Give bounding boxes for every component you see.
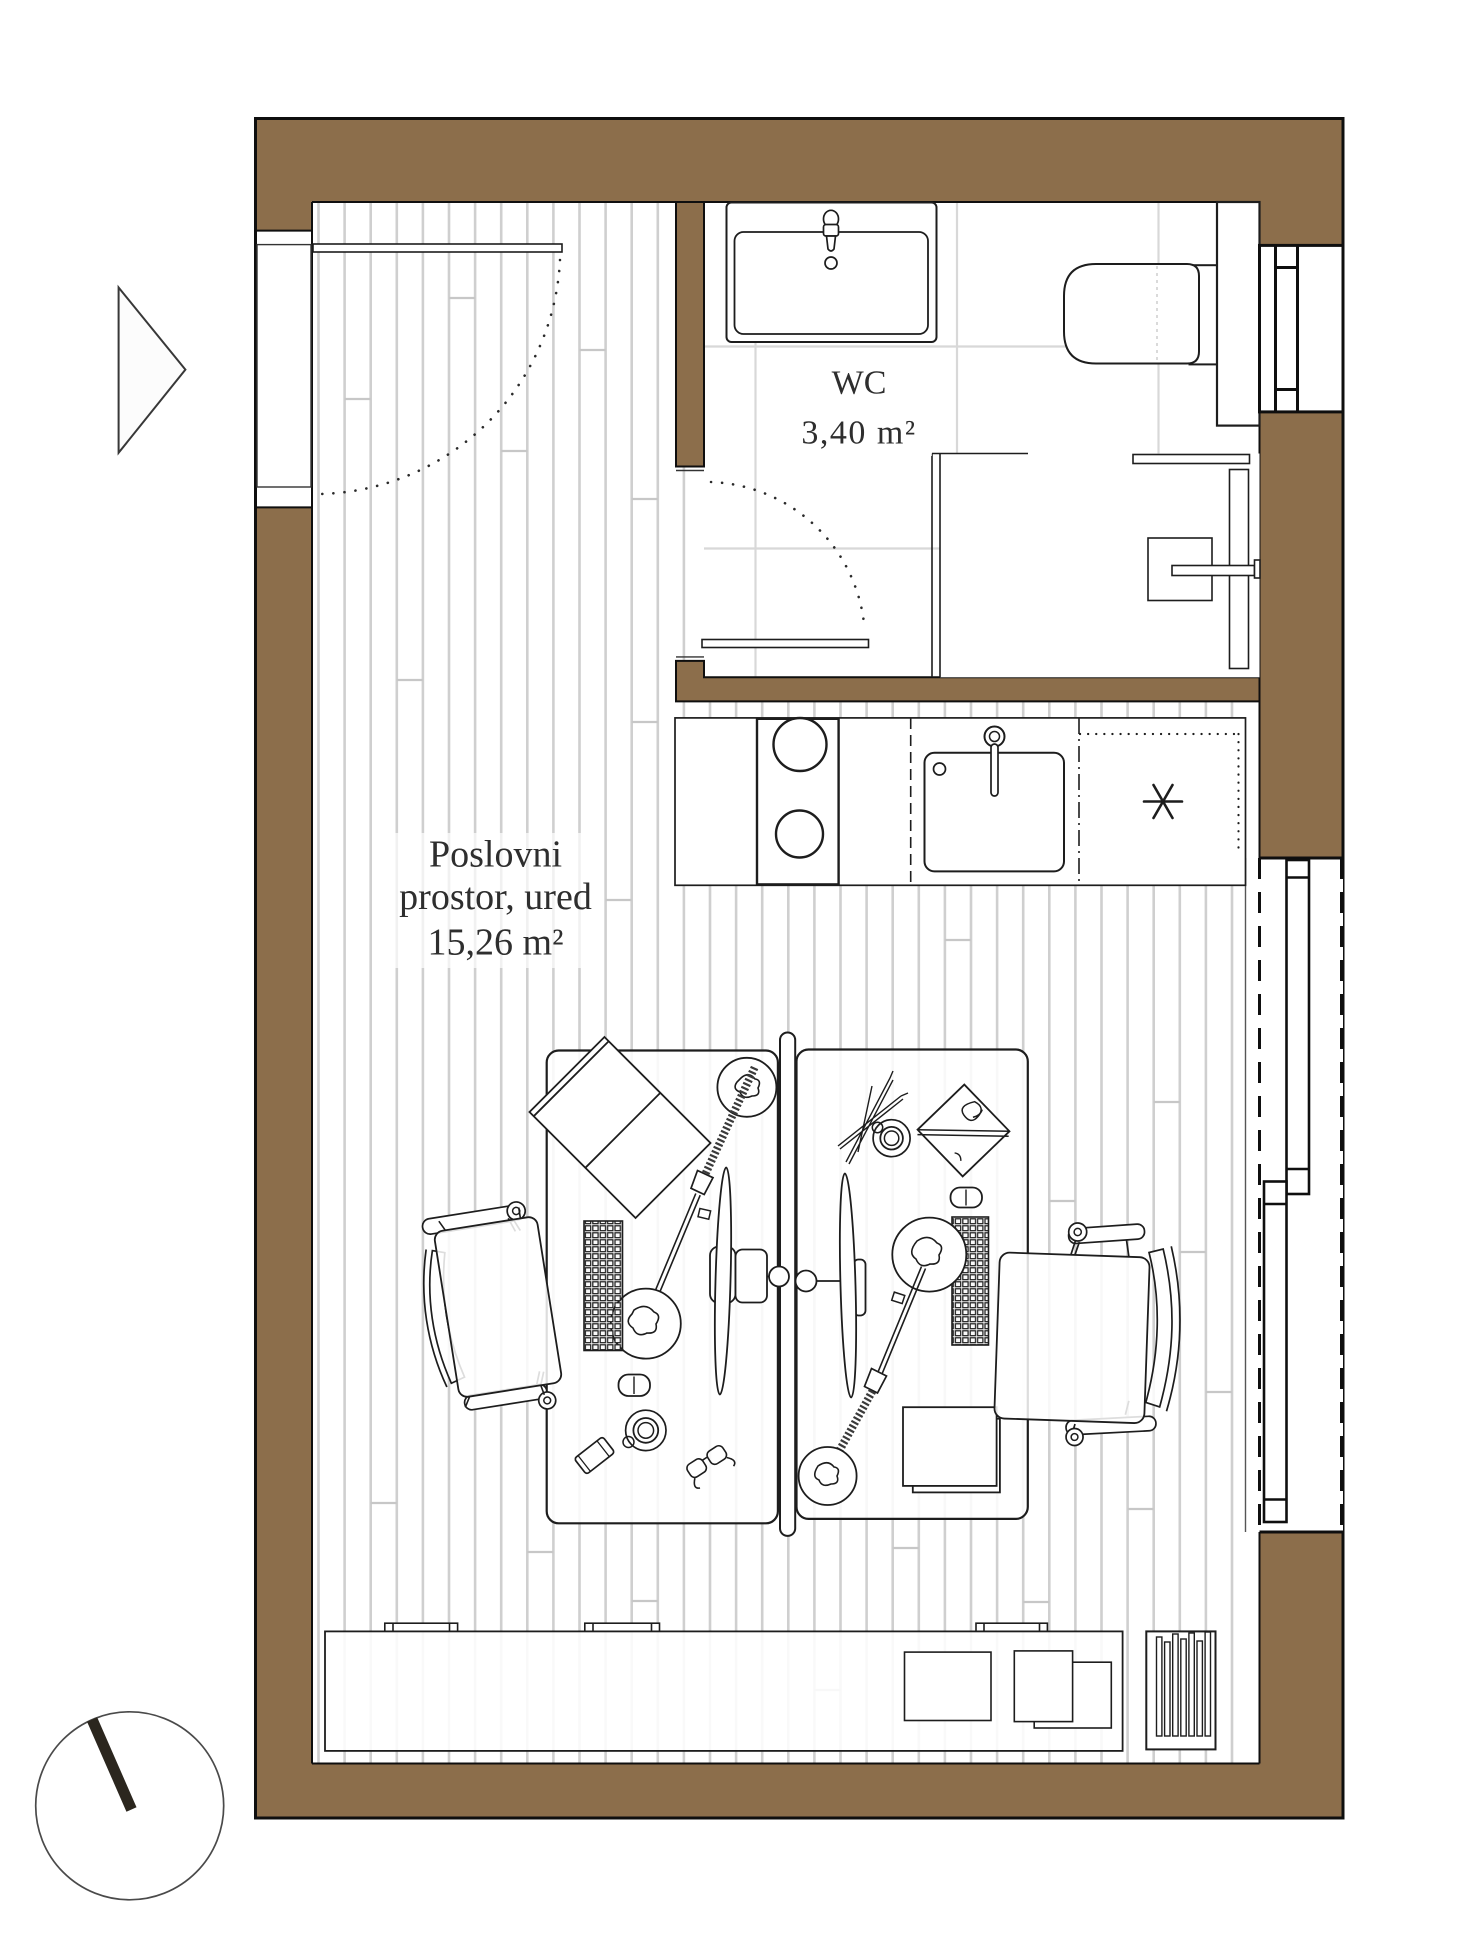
svg-text:3,40 m²: 3,40 m² (801, 415, 916, 452)
svg-text:WC: WC (832, 365, 887, 402)
svg-text:Poslovni: Poslovni (429, 834, 562, 876)
svg-text:15,26 m²: 15,26 m² (428, 922, 564, 964)
svg-text:prostor, ured: prostor, ured (399, 876, 592, 918)
